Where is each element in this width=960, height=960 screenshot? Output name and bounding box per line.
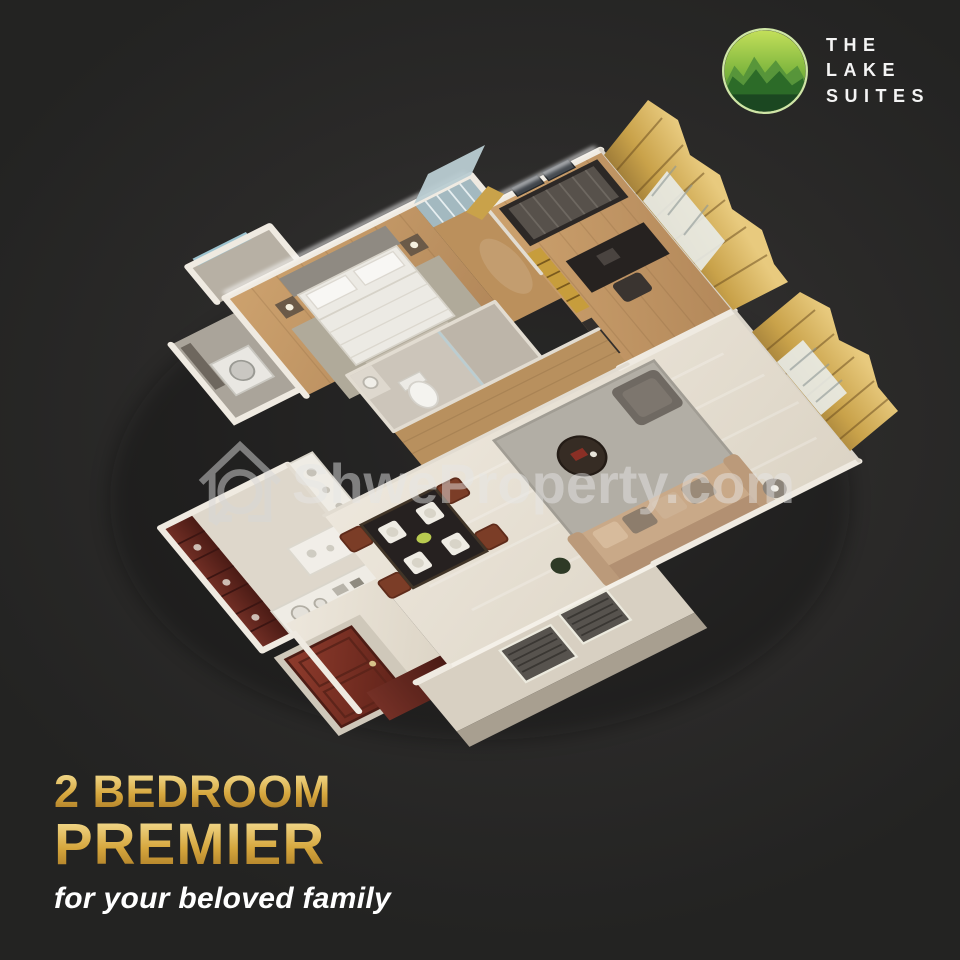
mountains-in-circle-icon: [720, 26, 810, 116]
brand-name: THE LAKE SUITES: [826, 33, 930, 110]
caption: 2 BEDROOM PREMIER for your beloved famil…: [54, 770, 391, 916]
tagline: for your beloved family: [54, 882, 391, 916]
brand-line: LAKE: [826, 58, 930, 84]
headline-line1: 2 BEDROOM: [54, 770, 391, 814]
brand: THE LAKE SUITES: [720, 26, 930, 116]
brand-line: THE: [826, 33, 930, 59]
poster: THE LAKE SUITES ShweProperty.com 2 BEDRO…: [0, 0, 960, 960]
headline-line2: PREMIER: [54, 816, 391, 874]
brand-line: SUITES: [826, 84, 930, 110]
